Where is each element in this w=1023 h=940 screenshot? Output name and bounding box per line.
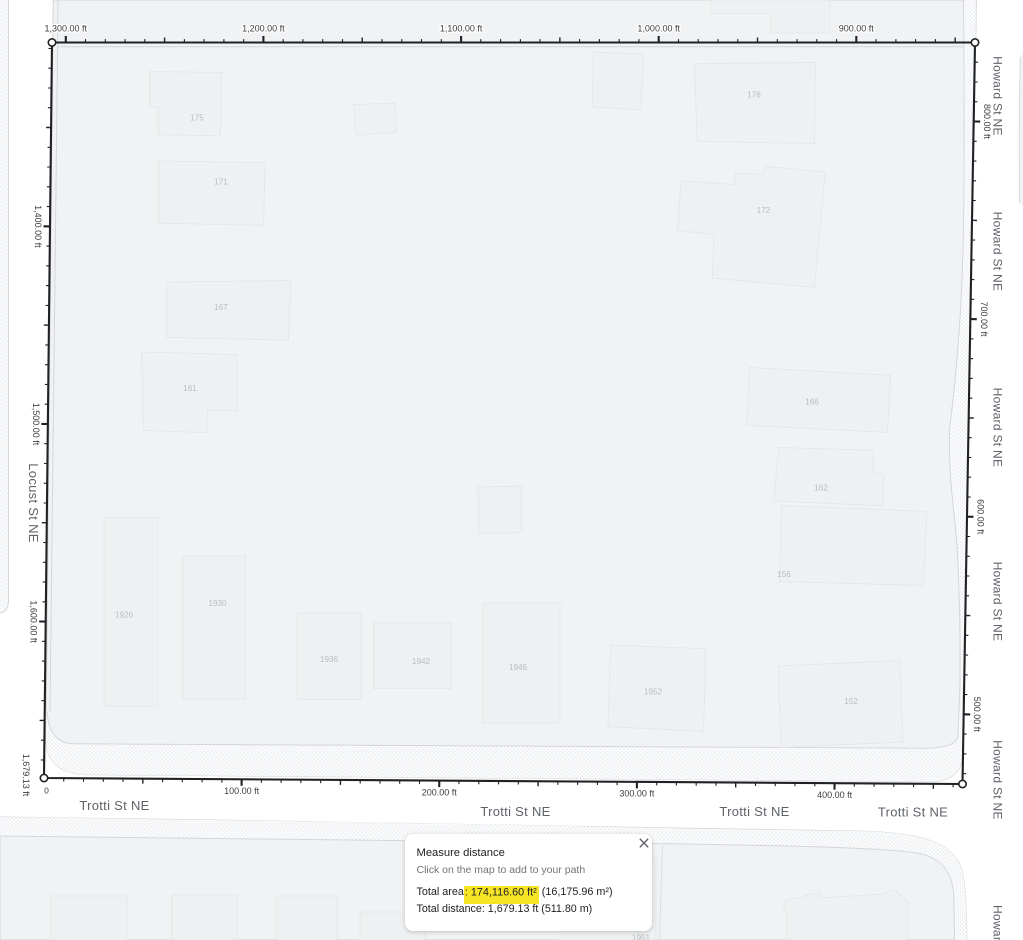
svg-text:166: 166 — [805, 398, 819, 407]
svg-text:1952: 1952 — [644, 688, 663, 697]
svg-text:100.00 ft: 100.00 ft — [224, 786, 260, 796]
svg-text:Trotti St NE: Trotti St NE — [480, 804, 550, 819]
svg-text:200.00 ft: 200.00 ft — [422, 787, 458, 797]
svg-text:152: 152 — [844, 697, 858, 706]
svg-text:1,679.13 ft: 1,679.13 ft — [21, 754, 31, 797]
svg-text:Trotti St NE: Trotti St NE — [719, 804, 789, 819]
svg-text:1,300.00 ft: 1,300.00 ft — [45, 23, 88, 33]
svg-text:400.00 ft: 400.00 ft — [817, 790, 853, 800]
svg-text:700.00 ft: 700.00 ft — [979, 301, 989, 337]
svg-text:161: 161 — [183, 384, 197, 393]
svg-text:900.00 ft: 900.00 ft — [839, 23, 875, 33]
svg-text:1946: 1946 — [509, 663, 528, 672]
svg-text:1,100.00 ft: 1,100.00 ft — [440, 23, 483, 33]
svg-text:500.00 ft: 500.00 ft — [972, 697, 982, 733]
svg-text:600.00 ft: 600.00 ft — [976, 499, 986, 535]
svg-text:1936: 1936 — [320, 655, 339, 664]
svg-text:1942: 1942 — [412, 657, 431, 666]
svg-text:1,200.00 ft: 1,200.00 ft — [242, 23, 285, 33]
svg-text:Howard St NE: Howard St NE — [991, 212, 1005, 292]
svg-text:Howard St NE: Howard St NE — [991, 740, 1005, 820]
svg-text:0: 0 — [44, 786, 49, 796]
svg-text:175: 175 — [190, 114, 204, 123]
svg-text:Howard St NE: Howard St NE — [991, 388, 1005, 468]
svg-text:1,600.00 ft: 1,600.00 ft — [29, 600, 39, 643]
svg-text:Howard St NE: Howard St NE — [991, 56, 1005, 136]
svg-text:1,400.00 ft: 1,400.00 ft — [33, 205, 43, 248]
svg-text:156: 156 — [777, 570, 791, 579]
svg-text:Howard St NE: Howard St NE — [991, 562, 1005, 642]
svg-text:1926: 1926 — [115, 611, 134, 620]
svg-text:1,000.00 ft: 1,000.00 ft — [637, 23, 680, 33]
svg-text:Howard St NE: Howard St NE — [991, 905, 1005, 940]
svg-text:1930: 1930 — [208, 599, 227, 608]
svg-text:Locust St NE: Locust St NE — [26, 463, 41, 542]
svg-text:162: 162 — [814, 484, 828, 493]
svg-text:1,500.00 ft: 1,500.00 ft — [31, 403, 41, 446]
svg-text:172: 172 — [757, 206, 771, 215]
svg-text:Trotti St NE: Trotti St NE — [79, 798, 149, 813]
svg-text:Trotti St NE: Trotti St NE — [878, 805, 948, 820]
svg-text:1951: 1951 — [632, 934, 651, 940]
svg-text:300.00 ft: 300.00 ft — [619, 789, 655, 799]
svg-text:167: 167 — [214, 303, 228, 312]
svg-text:176: 176 — [747, 91, 761, 100]
svg-text:171: 171 — [214, 178, 228, 187]
